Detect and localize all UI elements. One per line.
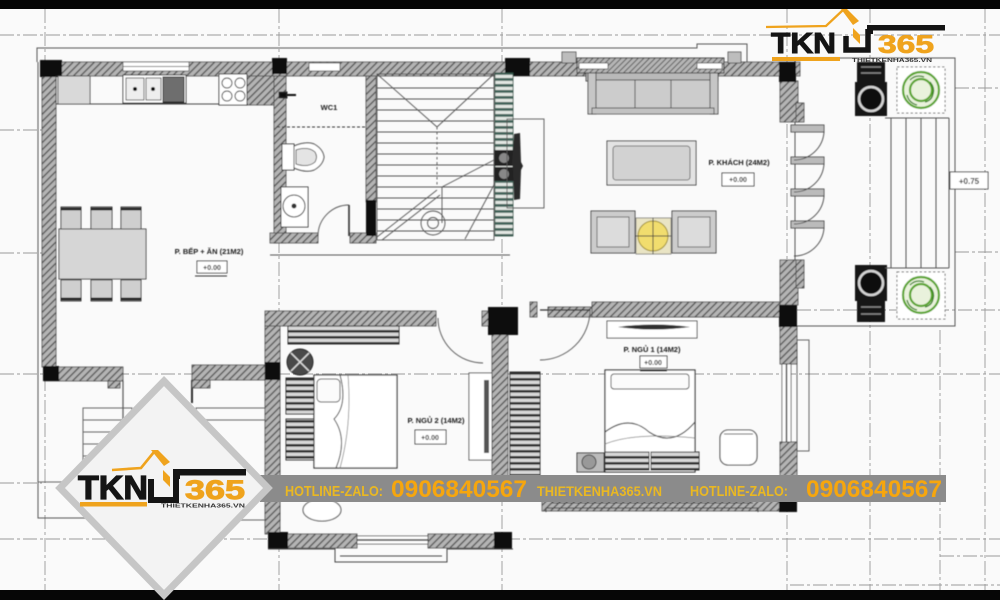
svg-text:P. NGỦ 2 (14M2): P. NGỦ 2 (14M2)	[408, 416, 465, 425]
svg-text:P. BẾP + ĂN (21M2): P. BẾP + ĂN (21M2)	[175, 246, 244, 256]
svg-text:0906840567: 0906840567	[391, 476, 527, 503]
svg-text:THIETKENHA365.VN: THIETKENHA365.VN	[852, 58, 932, 64]
svg-text:+0.00: +0.00	[203, 265, 221, 272]
svg-text:HOTLINE-ZALO:: HOTLINE-ZALO:	[285, 483, 383, 500]
svg-text:TKN: TKN	[78, 469, 148, 506]
svg-text:THIETKENHA365.VN: THIETKENHA365.VN	[537, 483, 662, 499]
svg-text:HOTLINE-ZALO:: HOTLINE-ZALO:	[690, 483, 788, 500]
svg-text:0906840567: 0906840567	[806, 476, 942, 503]
svg-text:365: 365	[185, 475, 245, 505]
svg-text:THIETKENHA365.VN: THIETKENHA365.VN	[161, 504, 245, 510]
svg-text:P. KHÁCH (24M2): P. KHÁCH (24M2)	[708, 158, 770, 167]
svg-text:+0.75: +0.75	[959, 177, 980, 186]
svg-text:+0.00: +0.00	[644, 360, 662, 367]
svg-text:365: 365	[878, 31, 934, 59]
svg-text:TKN: TKN	[771, 28, 836, 60]
svg-text:+0.00: +0.00	[729, 177, 747, 184]
svg-text:P. NGỦ 1 (14M2): P. NGỦ 1 (14M2)	[624, 345, 681, 354]
svg-text:+0.00: +0.00	[421, 435, 439, 442]
svg-text:WC1: WC1	[321, 103, 338, 112]
